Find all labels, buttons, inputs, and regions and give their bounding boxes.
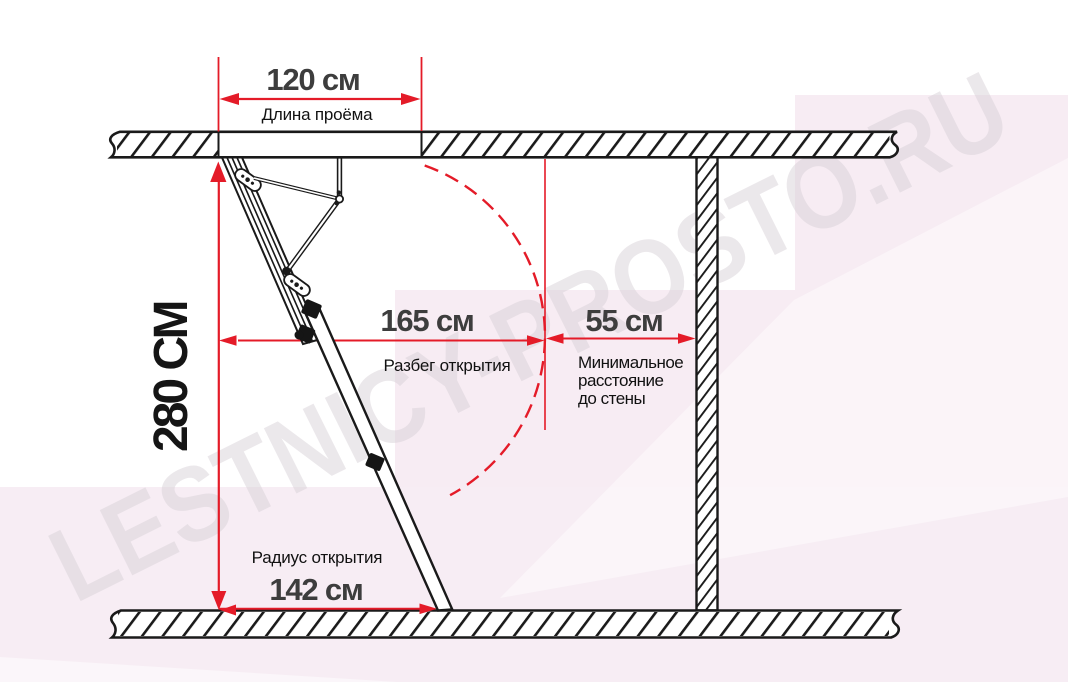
svg-text:до стены: до стены <box>578 389 646 408</box>
svg-text:расстояние: расстояние <box>578 371 664 390</box>
svg-text:120 см: 120 см <box>266 62 359 97</box>
svg-text:Радиус открытия: Радиус открытия <box>252 548 383 567</box>
svg-text:Минимальное: Минимальное <box>578 353 683 372</box>
svg-text:280 СМ: 280 СМ <box>145 303 198 452</box>
svg-text:142 см: 142 см <box>269 572 362 607</box>
svg-text:55 см: 55 см <box>585 303 662 338</box>
svg-text:165 см: 165 см <box>380 303 473 338</box>
svg-text:Разбег открытия: Разбег открытия <box>383 356 510 375</box>
svg-text:Длина проёма: Длина проёма <box>262 105 374 124</box>
